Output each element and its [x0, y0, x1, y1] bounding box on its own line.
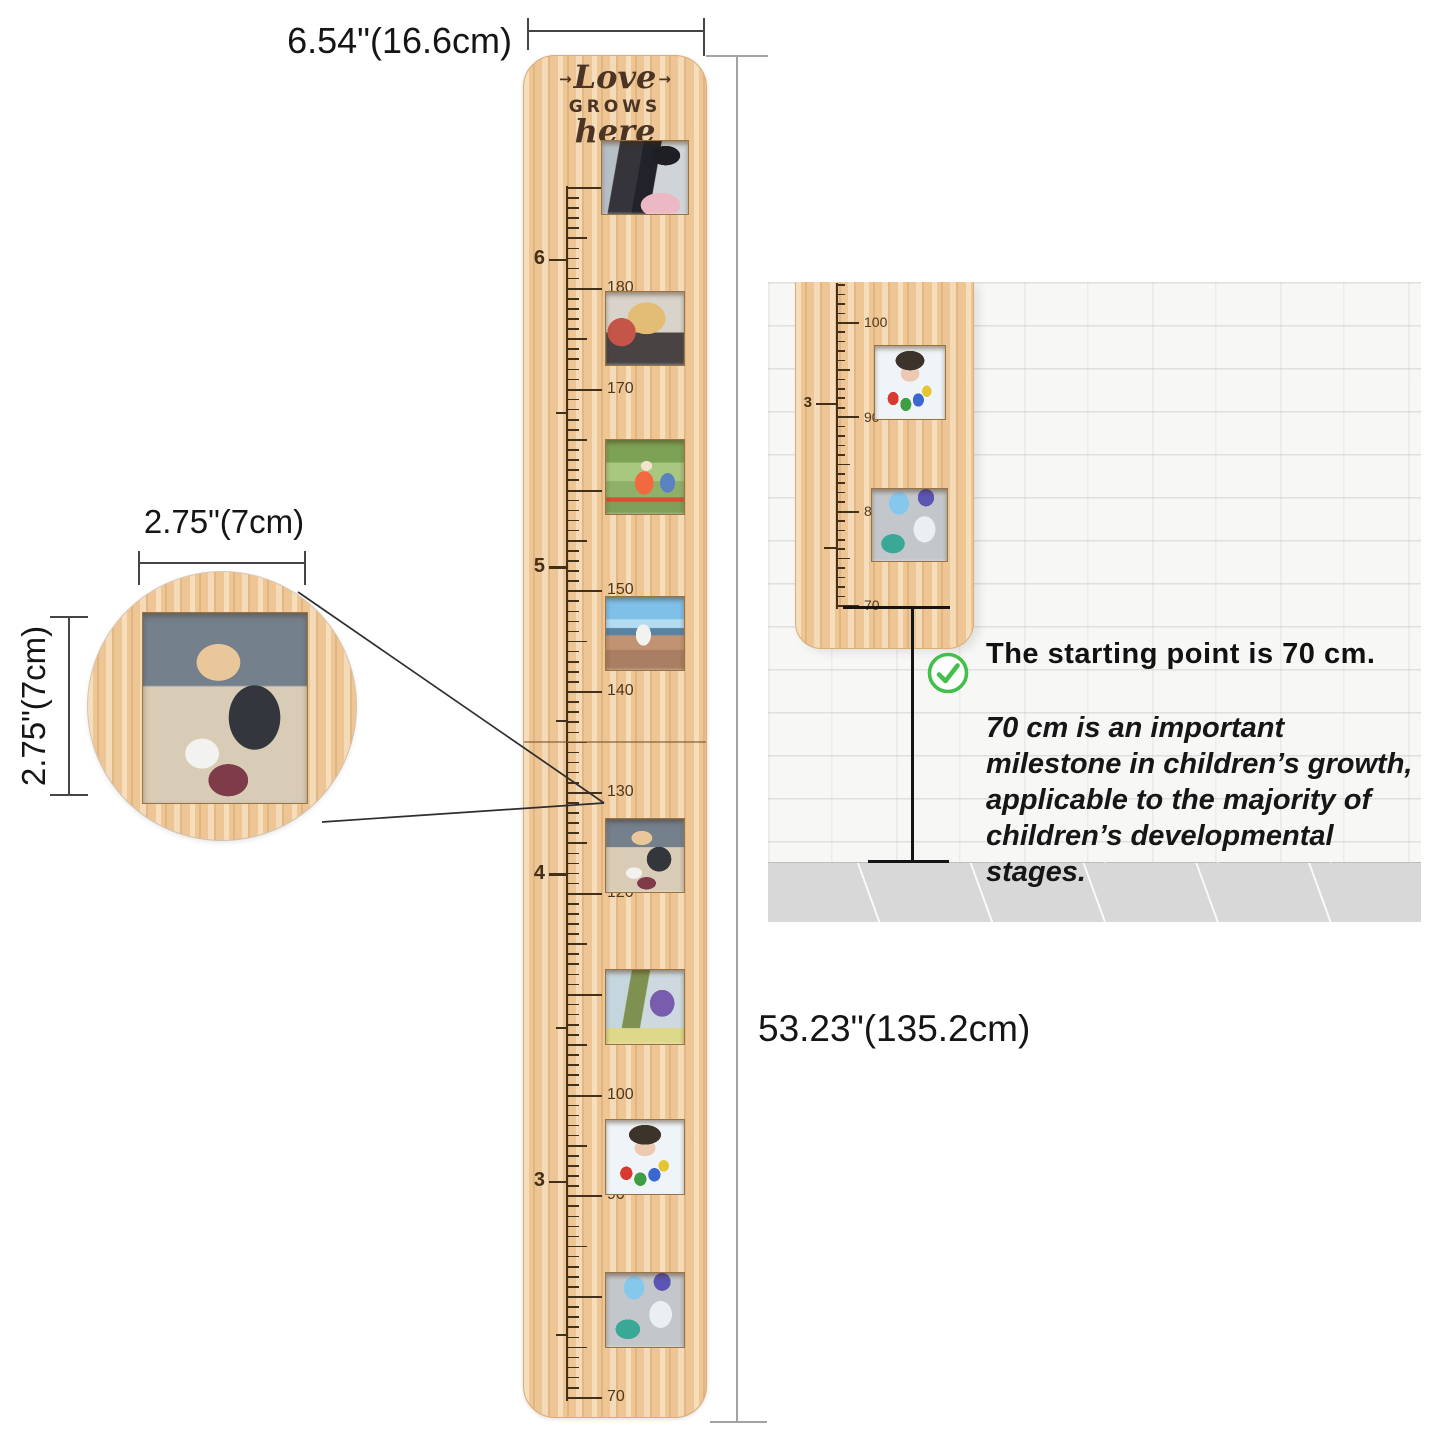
ruler-tick	[566, 691, 602, 693]
ruler-tick	[566, 288, 602, 290]
frame-width-dimension-label: 2.75"(7cm)	[118, 503, 330, 541]
ruler-tick	[566, 883, 579, 885]
ruler-tick	[566, 863, 579, 865]
ruler-tick	[566, 590, 602, 592]
ruler-tick	[566, 1125, 579, 1127]
ruler-tick	[836, 464, 850, 466]
ruler-tick	[836, 539, 845, 541]
wall-scene-panel: 7080901003 The starting point is 70 cm. …	[768, 282, 1421, 922]
ruler-tick	[836, 397, 845, 399]
ruler-tick	[836, 586, 845, 588]
ruler-tick	[566, 792, 602, 794]
inset-photo-girl-with-soccer-ball	[142, 612, 308, 804]
frame-width-line	[138, 562, 306, 564]
frame-height-tick-bottom	[50, 794, 88, 796]
ruler-tick	[566, 308, 579, 310]
board-ruler: 7080901001101201301401501601701801903456	[524, 56, 706, 1417]
ruler-tick	[549, 873, 566, 875]
ruler-tick	[836, 407, 845, 409]
ruler-tick	[566, 227, 579, 229]
ruler-tick	[566, 338, 587, 340]
frame-height-line	[68, 617, 70, 795]
ruler-label: 140	[607, 682, 634, 700]
ruler-tick	[566, 903, 579, 905]
ruler-tick	[566, 328, 579, 330]
ruler-tick	[566, 1246, 587, 1248]
ruler-tick	[566, 1155, 579, 1157]
ruler-tick	[836, 473, 845, 475]
ruler-tick	[566, 984, 579, 986]
ruler-tick	[836, 341, 845, 343]
ruler-tick	[566, 237, 587, 239]
frame-zoom-inset	[88, 572, 356, 840]
ruler-label: 130	[607, 783, 634, 801]
ruler-tick	[566, 721, 579, 723]
ruler-tick	[566, 560, 579, 562]
check-icon	[926, 651, 970, 695]
ruler-tick	[566, 1105, 579, 1107]
measure-line-vertical	[911, 606, 914, 862]
mini-board-ruler: 7080901003	[796, 282, 973, 648]
ruler-tick	[566, 1286, 579, 1288]
ruler-tick	[566, 1064, 579, 1066]
ruler-tick	[566, 1095, 602, 1097]
ruler-tick	[566, 1326, 579, 1328]
ruler-tick	[566, 217, 579, 219]
ruler-tick	[836, 558, 850, 560]
ruler-tick	[566, 1347, 587, 1349]
frame-width-tick-right	[304, 551, 306, 585]
ruler-label: 100	[864, 314, 887, 330]
ruler-label: 70	[607, 1388, 625, 1406]
ruler-tick	[836, 445, 845, 447]
panel-body-text: 70 cm is an important milestone in child…	[986, 710, 1421, 890]
ruler-tick	[836, 303, 845, 305]
ruler-tick	[566, 187, 602, 189]
ruler-tick	[566, 459, 579, 461]
ruler-tick	[566, 611, 579, 613]
ruler-tick	[566, 812, 579, 814]
ruler-label: 3	[795, 394, 812, 411]
ruler-tick	[566, 449, 579, 451]
ruler-tick	[566, 1044, 587, 1046]
ruler-tick	[566, 782, 579, 784]
board-width-dimension-label: 6.54"(16.6cm)	[280, 20, 512, 62]
ruler-tick	[566, 732, 579, 734]
ruler-tick	[566, 1377, 579, 1379]
ruler-tick	[836, 492, 845, 494]
ruler-label: 3	[523, 1169, 545, 1192]
ruler-tick	[566, 711, 579, 713]
ruler-tick	[566, 1306, 579, 1308]
ruler-tick	[836, 331, 845, 333]
ruler-tick	[836, 369, 850, 371]
ruler-label: 5	[523, 555, 545, 578]
ruler-tick	[566, 681, 579, 683]
ruler-tick	[566, 923, 579, 925]
ruler-tick	[566, 893, 602, 895]
ruler-tick	[566, 278, 579, 280]
ruler-tick	[566, 641, 587, 643]
mini-photo-frame-painted-hands	[874, 345, 946, 420]
ruler-tick	[566, 439, 587, 441]
ruler-tick	[566, 1316, 579, 1318]
ruler-tick	[566, 207, 579, 209]
ruler-tick	[836, 294, 845, 296]
ruler-tick	[566, 1165, 579, 1167]
ruler-tick	[556, 412, 566, 414]
ruler-tick	[566, 832, 579, 834]
photo-frame-race-finish	[605, 439, 685, 515]
ruler-tick	[566, 1034, 579, 1036]
ruler-tick	[566, 1175, 579, 1177]
ruler-tick	[824, 547, 836, 549]
ruler-tick	[566, 490, 602, 492]
ruler-tick	[566, 500, 579, 502]
mini-photo-frame-birthday-toddler	[871, 488, 948, 562]
ruler-tick	[836, 426, 845, 428]
ruler-tick	[566, 994, 602, 996]
product-dimension-diagram: 6.54"(16.6cm) 53.23"(135.2cm) →Love→ GRO…	[0, 0, 1445, 1445]
ruler-tick	[566, 1357, 579, 1359]
photo-frame-painted-hands	[605, 1119, 685, 1195]
ruler-tick	[566, 520, 579, 522]
frame-height-tick-top	[50, 616, 88, 618]
ruler-tick	[566, 1024, 579, 1026]
ruler-tick	[566, 842, 587, 844]
ruler-tick	[566, 479, 579, 481]
ruler-tick	[566, 943, 587, 945]
ruler-tick	[566, 1226, 579, 1228]
mini-growth-chart-board: 7080901003	[795, 282, 974, 649]
ruler-tick	[566, 772, 579, 774]
ruler-tick	[836, 360, 845, 362]
width-dimension-tick-right	[703, 18, 705, 56]
ruler-tick	[836, 284, 845, 286]
measure-line-floor	[868, 860, 949, 863]
ruler-tick	[566, 1115, 579, 1117]
ruler-tick	[836, 388, 845, 390]
photo-frame-graduation-couple	[601, 140, 689, 215]
ruler-tick	[836, 416, 859, 418]
ruler-tick	[566, 1135, 579, 1137]
width-dimension-tick-left	[527, 18, 529, 50]
board-height-dimension-label: 53.23"(135.2cm)	[758, 1008, 1030, 1050]
ruler-tick	[566, 1014, 579, 1016]
ruler-tick	[836, 454, 845, 456]
ruler-tick	[566, 631, 579, 633]
ruler-tick	[566, 258, 579, 260]
ruler-tick	[566, 963, 579, 965]
ruler-tick	[566, 1185, 579, 1187]
ruler-tick	[556, 720, 566, 722]
ruler-tick	[566, 399, 579, 401]
ruler-tick	[566, 510, 579, 512]
ruler-tick	[566, 570, 579, 572]
ruler-tick	[566, 974, 579, 976]
ruler-tick	[556, 1334, 566, 1336]
ruler-tick	[566, 822, 579, 824]
ruler-tick	[549, 1181, 566, 1183]
ruler-label: 170	[607, 380, 634, 398]
ruler-tick	[566, 933, 579, 935]
ruler-tick	[566, 762, 579, 764]
ruler-tick	[836, 596, 845, 598]
ruler-tick	[566, 621, 579, 623]
ruler-tick	[566, 1266, 579, 1268]
ruler-tick	[566, 318, 579, 320]
ruler-tick	[566, 369, 579, 371]
ruler-tick	[566, 752, 579, 754]
frame-height-dimension-label: 2.75"(7cm)	[15, 601, 51, 811]
ruler-label: 6	[523, 247, 545, 270]
panel-headline: The starting point is 70 cm.	[986, 638, 1421, 671]
ruler-tick	[566, 1074, 579, 1076]
ruler-tick	[566, 580, 579, 582]
photo-frame-child-with-backpack	[605, 969, 685, 1045]
ruler-tick	[566, 429, 579, 431]
ruler-tick	[566, 953, 579, 955]
photo-frame-girl-with-soccer-ball	[605, 818, 685, 893]
ruler-tick	[566, 389, 602, 391]
ruler-tick	[566, 1236, 579, 1238]
frame-width-tick-left	[138, 551, 140, 585]
ruler-tick	[566, 913, 579, 915]
ruler-tick	[836, 313, 845, 315]
ruler-tick	[549, 566, 566, 568]
ruler-tick	[836, 379, 845, 381]
ruler-tick	[836, 520, 845, 522]
ruler-tick	[566, 550, 579, 552]
ruler-tick	[566, 873, 579, 875]
ruler-tick	[566, 1195, 602, 1197]
ruler-tick	[566, 540, 587, 542]
ruler-tick	[836, 482, 845, 484]
board-seam-line	[524, 741, 706, 743]
ruler-tick	[836, 322, 859, 324]
ruler-tick	[566, 1296, 602, 1298]
ruler-tick	[566, 600, 579, 602]
ruler-tick	[566, 298, 579, 300]
ruler-tick	[836, 435, 845, 437]
ruler-tick	[566, 1205, 579, 1207]
ruler-tick	[566, 469, 579, 471]
ruler-tick	[566, 853, 579, 855]
photo-frame-city-vista	[605, 596, 685, 671]
ruler-tick	[566, 802, 579, 804]
ruler-tick	[566, 1084, 579, 1086]
ruler-tick	[566, 1145, 587, 1147]
ruler-tick	[566, 409, 579, 411]
ruler-tick	[566, 1337, 579, 1339]
measure-line-70cm	[843, 606, 950, 609]
ruler-tick	[566, 197, 579, 199]
ruler-tick	[566, 1367, 579, 1369]
ruler-tick	[566, 268, 579, 270]
ruler-tick	[566, 1387, 579, 1389]
ruler-tick	[566, 1054, 579, 1056]
ruler-tick	[836, 501, 845, 503]
ruler-tick	[566, 1216, 579, 1218]
photo-frame-woman-with-cake	[605, 291, 685, 366]
ruler-tick	[566, 661, 579, 663]
ruler-tick	[566, 701, 579, 703]
growth-chart-board: →Love→ GROWS here 7080901001101201301401…	[523, 55, 707, 1418]
ruler-tick	[566, 651, 579, 653]
height-dimension-tick-bottom	[710, 1421, 767, 1423]
ruler-tick	[566, 1004, 579, 1006]
width-dimension-line	[527, 30, 705, 32]
ruler-tick	[836, 350, 845, 352]
ruler-tick	[836, 577, 845, 579]
ruler-tick	[566, 419, 579, 421]
ruler-tick	[556, 1027, 566, 1029]
ruler-tick	[816, 403, 836, 405]
ruler-tick	[566, 248, 579, 250]
ruler-tick	[566, 358, 579, 360]
height-dimension-line	[736, 55, 738, 1423]
ruler-tick	[836, 548, 845, 550]
ruler-tick	[566, 530, 579, 532]
photo-frame-birthday-toddler	[605, 1272, 685, 1348]
ruler-tick	[836, 511, 859, 513]
ruler-tick	[836, 567, 845, 569]
ruler-tick	[566, 1276, 579, 1278]
ruler-label: 4	[523, 862, 545, 885]
ruler-tick	[566, 1397, 602, 1399]
ruler-tick	[566, 379, 579, 381]
ruler-tick	[566, 1256, 579, 1258]
ruler-tick	[549, 259, 566, 261]
ruler-tick	[566, 671, 579, 673]
ruler-tick	[836, 530, 845, 532]
ruler-label: 100	[607, 1086, 634, 1104]
ruler-tick	[566, 348, 579, 350]
